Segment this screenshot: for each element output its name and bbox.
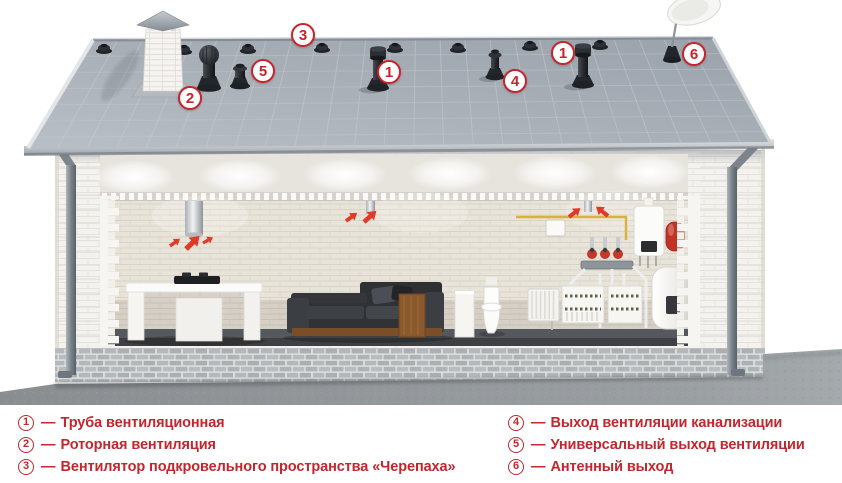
legend-label-1: Труба вентиляционная [61,415,225,431]
legend-label-5: Универсальный выход вентиляции [551,437,805,453]
legend-item-3: 3 — Вентилятор подкровельного пространст… [18,458,455,475]
kitchen-hood-duct [185,201,203,238]
legend-number-1: 1 [18,415,34,431]
legend-item-6: 6 — Антенный выход [508,458,805,475]
roof-marker-stack-right: 1 [551,41,575,65]
roof-marker-sewer: 4 [503,69,527,93]
legend-dash: — [41,437,56,453]
legend: 1 — Труба вентиляционная 2 — Роторная ве… [0,405,842,483]
legend-dash: — [531,459,546,475]
roof-marker-antenna: 6 [682,42,706,66]
boiler-room-duct [584,201,592,212]
legend-column-right: 4 — Выход вентиляции канализации 5 — Уни… [508,414,805,480]
legend-item-2: 2 — Роторная вентиляция [18,436,455,453]
legend-number-4: 4 [508,415,524,431]
gas-meter [546,220,565,236]
wooden-console [399,294,425,337]
legend-number-6: 6 [508,459,524,475]
satellite-dish [664,0,724,30]
legend-dash: — [41,415,56,431]
interior [100,191,700,346]
roof-marker-rotor: 2 [178,86,202,110]
legend-item-4: 4 — Выход вентиляции канализации [508,414,805,431]
legend-dash: — [41,459,56,475]
legend-item-5: 5 — Универсальный выход вентиляции [508,436,805,453]
house-illustration [0,0,842,405]
roof-marker-universal: 5 [251,59,275,83]
legend-label-2: Роторная вентиляция [61,437,216,453]
legend-dash: — [531,437,546,453]
legend-label-6: Антенный выход [551,459,674,475]
roof-marker-turtle: 3 [291,23,315,47]
underfloor-manifold-cabinets [562,286,642,323]
legend-column-left: 1 — Труба вентиляционная 2 — Роторная ве… [18,414,455,480]
bathroom-partition [455,291,474,337]
roof-marker-stack-left: 1 [377,60,401,84]
legend-label-3: Вентилятор подкровельного пространства «… [61,459,456,475]
house-ventilation-diagram: 2 5 3 1 4 1 6 [0,0,842,405]
legend-number-2: 2 [18,437,34,453]
legend-item-1: 1 — Труба вентиляционная [18,414,455,431]
legend-number-3: 3 [18,459,34,475]
legend-label-4: Выход вентиляции канализации [551,415,783,431]
legend-number-5: 5 [508,437,524,453]
legend-dash: — [531,415,546,431]
